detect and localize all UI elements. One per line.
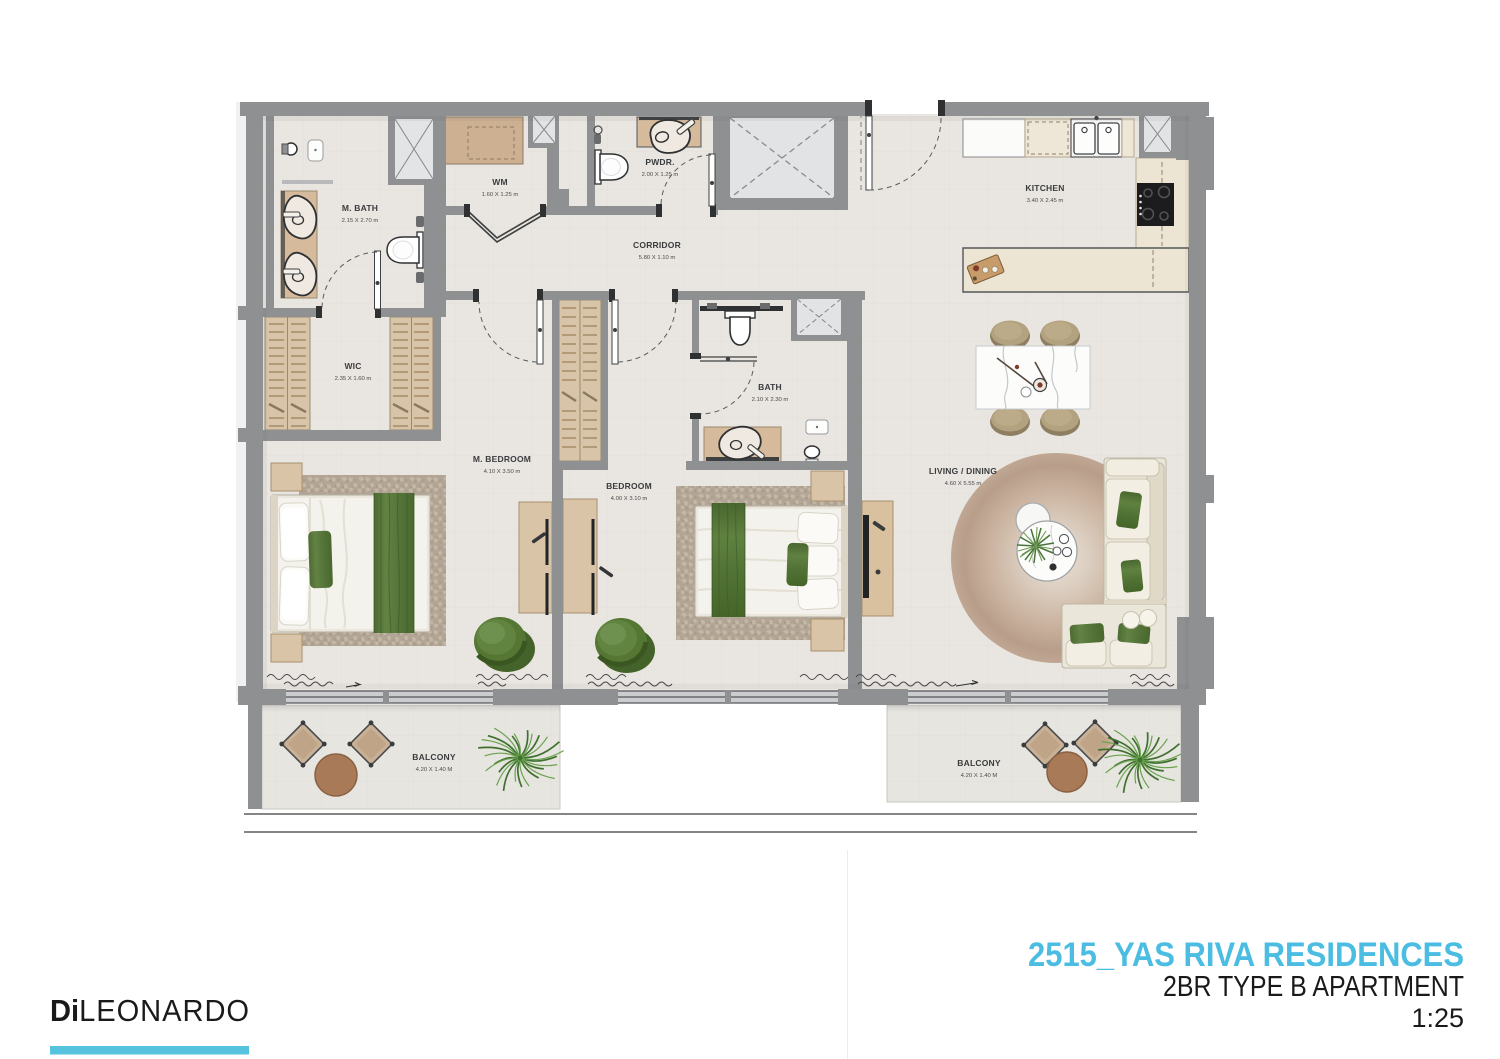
svg-text:CORRIDOR: CORRIDOR	[633, 240, 681, 250]
svg-text:WM: WM	[492, 177, 508, 187]
svg-text:BATH: BATH	[758, 382, 782, 392]
svg-text:WIC: WIC	[344, 361, 361, 371]
svg-text:M. BEDROOM: M. BEDROOM	[473, 454, 531, 464]
svg-text:5.80 X 1.10 m: 5.80 X 1.10 m	[639, 255, 676, 261]
svg-text:BALCONY: BALCONY	[412, 752, 456, 762]
svg-text:2.00 X 1.25 m: 2.00 X 1.25 m	[642, 172, 679, 178]
svg-text:1:25: 1:25	[1411, 1003, 1464, 1033]
svg-text:3.40 X 2.45 m: 3.40 X 2.45 m	[1027, 198, 1064, 204]
svg-text:M. BATH: M. BATH	[342, 203, 378, 213]
svg-text:2BR TYPE B APARTMENT: 2BR TYPE B APARTMENT	[1163, 971, 1464, 1003]
svg-text:4.10 X 3.50 m: 4.10 X 3.50 m	[484, 469, 521, 475]
svg-text:2.15 X 2.70 m: 2.15 X 2.70 m	[342, 218, 379, 224]
svg-text:4.20 X 1.40 M: 4.20 X 1.40 M	[961, 773, 998, 779]
svg-text:2.35 X 1.60 m: 2.35 X 1.60 m	[335, 376, 372, 382]
svg-text:4.00 X 3.10 m: 4.00 X 3.10 m	[611, 496, 648, 502]
svg-text:PWDR.: PWDR.	[645, 157, 674, 167]
svg-text:BEDROOM: BEDROOM	[606, 481, 652, 491]
svg-text:2515_YAS RIVA RESIDENCES: 2515_YAS RIVA RESIDENCES	[1028, 936, 1464, 974]
svg-text:BALCONY: BALCONY	[957, 758, 1001, 768]
svg-text:4.60 X 5.55 m: 4.60 X 5.55 m	[945, 481, 982, 487]
svg-text:4.20 X 1.40 M: 4.20 X 1.40 M	[416, 767, 453, 773]
svg-text:1.60 X 1.25 m: 1.60 X 1.25 m	[482, 192, 519, 198]
svg-text:2.10 X 2.30 m: 2.10 X 2.30 m	[752, 397, 789, 403]
svg-text:DiLEONARDO: DiLEONARDO	[50, 993, 250, 1028]
svg-text:KITCHEN: KITCHEN	[1025, 183, 1064, 193]
svg-text:LIVING / DINING: LIVING / DINING	[929, 466, 997, 476]
